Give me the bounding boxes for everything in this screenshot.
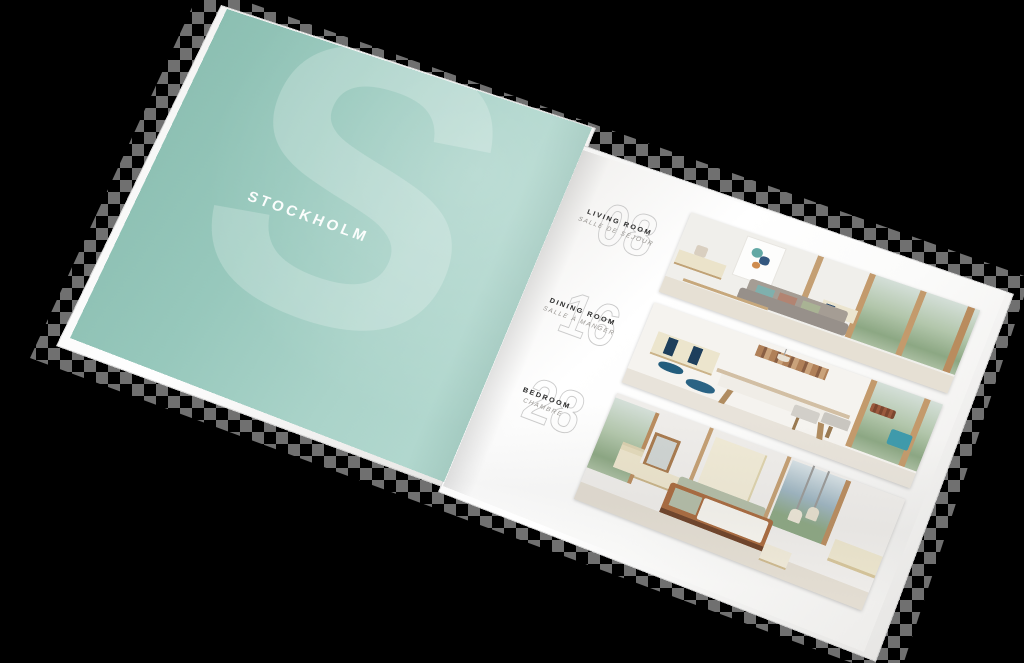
brochure-mockup-scene: 08 LIVING ROOM SALLE DE SÉJOUR	[0, 0, 1024, 663]
